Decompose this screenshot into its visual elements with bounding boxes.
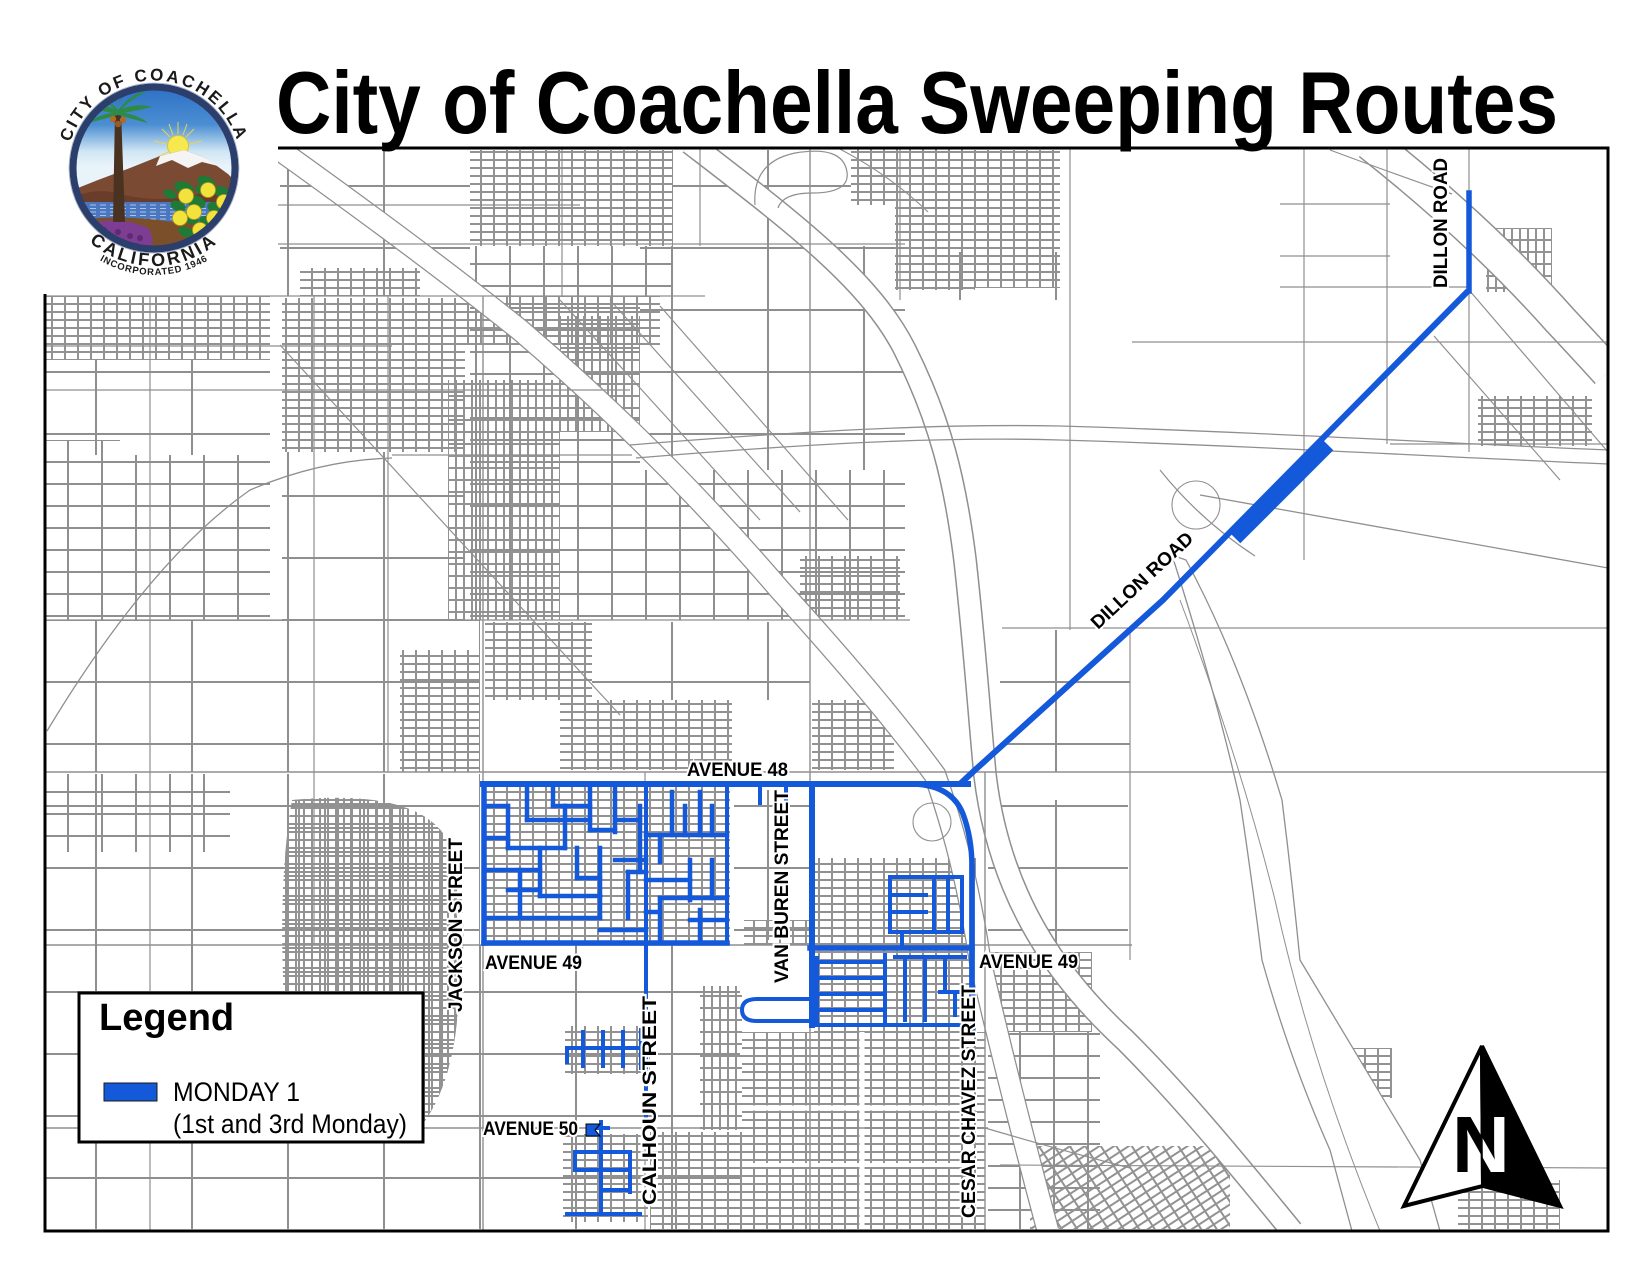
svg-text:AVENUE 48: AVENUE 48 [687, 760, 788, 781]
svg-text:City of Coachella Sweeping Rou: City of Coachella Sweeping Routes [276, 53, 1558, 152]
svg-text:AVENUE 49: AVENUE 49 [485, 953, 582, 974]
svg-text:CESAR CHAVEZ STREET: CESAR CHAVEZ STREET [959, 985, 980, 1218]
svg-text:DILLON ROAD: DILLON ROAD [1431, 158, 1452, 288]
svg-text:(1st and 3rd Monday): (1st and 3rd Monday) [173, 1109, 407, 1139]
svg-text:CALHOUN STREET: CALHOUN STREET [640, 996, 661, 1205]
svg-text:AVENUE 49: AVENUE 49 [979, 952, 1078, 973]
svg-text:VAN BUREN STREET: VAN BUREN STREET [772, 790, 793, 983]
svg-text:JACKSON STREET: JACKSON STREET [446, 838, 467, 1012]
svg-text:Legend: Legend [99, 997, 234, 1039]
svg-text:AVENUE 50: AVENUE 50 [483, 1119, 578, 1140]
svg-text:MONDAY 1: MONDAY 1 [173, 1077, 300, 1107]
